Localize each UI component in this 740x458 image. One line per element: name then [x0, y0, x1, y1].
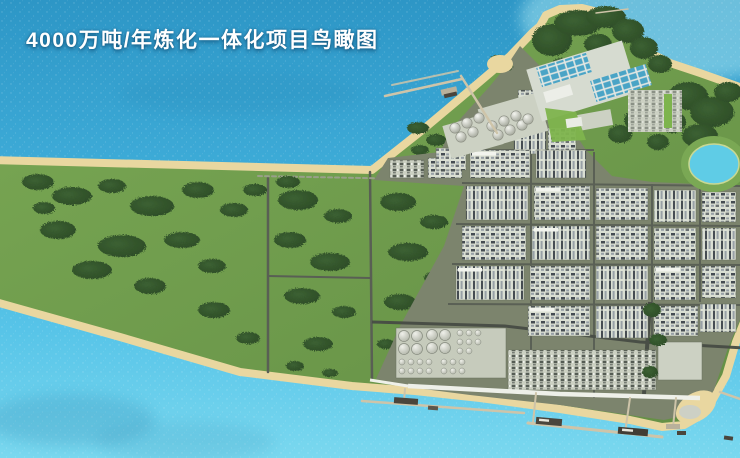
plant-block	[596, 226, 648, 260]
storage-tank-small	[399, 368, 405, 374]
sphere-tank	[493, 130, 503, 140]
sphere-tank	[450, 123, 460, 133]
block-label-strip	[530, 308, 554, 312]
storage-tank-small	[475, 330, 481, 336]
storage-tank	[412, 331, 423, 342]
tree-cluster	[98, 179, 126, 193]
plant-block	[596, 266, 648, 300]
storage-tank-small	[399, 359, 405, 365]
tree-cluster	[332, 306, 356, 318]
tree-cluster	[310, 253, 350, 271]
tree-cluster	[33, 202, 55, 214]
storage-tank-small	[457, 348, 463, 354]
tree-cluster	[243, 184, 267, 196]
tree-cluster	[22, 174, 54, 190]
tree-cluster	[407, 122, 429, 134]
tree-cluster	[276, 176, 300, 188]
plant-block	[702, 266, 736, 298]
tree-cluster	[420, 215, 448, 229]
parking-area	[628, 90, 682, 132]
tree-cluster	[52, 187, 92, 205]
storage-tank-small	[450, 359, 456, 365]
storage-tank-small	[466, 348, 472, 354]
sphere-tank	[523, 114, 533, 124]
sphere-tank	[462, 118, 472, 128]
sphere-tank	[499, 116, 509, 126]
tree-cluster	[322, 369, 338, 377]
plant-block	[536, 150, 586, 178]
tree-cluster	[647, 134, 669, 150]
storage-tank-small	[426, 359, 432, 365]
storage-tank	[412, 344, 423, 355]
tree-cluster	[642, 366, 658, 378]
storage-tank-small	[441, 368, 447, 374]
tree-cluster	[134, 278, 166, 294]
sphere-tank	[474, 113, 484, 123]
tree-cluster	[380, 193, 416, 211]
island-sand	[487, 55, 513, 73]
tree-cluster	[411, 145, 429, 155]
storage-tank-small	[457, 330, 463, 336]
plant-block	[654, 228, 696, 260]
storage-tank	[427, 330, 438, 341]
plant-block	[466, 186, 528, 220]
sphere-tank	[456, 132, 466, 142]
block-label-strip	[534, 228, 558, 232]
storage-tank-small	[466, 330, 472, 336]
block-label-strip	[656, 268, 680, 272]
project-title: 4000万吨/年炼化一体化项目鸟瞰图	[26, 24, 379, 54]
small-island	[487, 55, 513, 73]
cloud-shadow	[120, 73, 360, 117]
tree-cluster	[303, 337, 333, 351]
storage-tank-small	[441, 359, 447, 365]
storage-tank-small	[466, 339, 472, 345]
storage-tank	[399, 344, 410, 355]
concrete-pad	[679, 405, 701, 419]
tree-cluster	[630, 37, 658, 59]
plant-block	[508, 350, 656, 390]
tree-cluster	[198, 259, 226, 273]
sphere-tank	[505, 125, 515, 135]
plant-block	[596, 188, 648, 220]
plant-block	[700, 304, 736, 332]
tree-cluster	[236, 332, 260, 344]
tree-cluster	[164, 232, 200, 248]
storage-tank	[440, 343, 451, 354]
storage-tank-small	[475, 339, 481, 345]
storage-tank-small	[417, 359, 423, 365]
plant-block	[462, 226, 526, 260]
pond-water	[689, 144, 739, 184]
tree-cluster	[426, 134, 446, 146]
aerial-view-stage: 4000万吨/年炼化一体化项目鸟瞰图	[0, 0, 740, 458]
tree-cluster	[182, 182, 214, 198]
tree-cluster	[286, 361, 304, 371]
storage-tank	[440, 330, 451, 341]
tree-cluster	[40, 221, 76, 239]
storage-tank-small	[457, 339, 463, 345]
storage-tank-small	[459, 359, 465, 365]
plant-block	[530, 266, 590, 300]
storage-tank-small	[417, 368, 423, 374]
tug-boat	[428, 406, 438, 411]
storage-tank-small	[459, 368, 465, 374]
parked-vehicles	[628, 90, 682, 132]
tree-cluster	[72, 261, 112, 279]
tree-cluster	[278, 190, 318, 210]
storage-tank-small	[426, 368, 432, 374]
tree-cluster	[648, 55, 672, 73]
storage-tank-small	[450, 368, 456, 374]
aerial-view-canvas	[0, 0, 740, 458]
plant-block	[658, 342, 702, 380]
storage-tank	[427, 343, 438, 354]
tree-cluster	[324, 209, 352, 223]
storage-tank-small	[408, 359, 414, 365]
tree-cluster	[98, 235, 146, 257]
tree-cluster	[388, 243, 428, 261]
lawn-strip	[664, 94, 672, 128]
plant-block	[702, 192, 736, 222]
plant-block	[654, 190, 696, 222]
small-boat	[677, 431, 686, 435]
tree-cluster	[643, 303, 661, 317]
plant-block	[702, 228, 736, 260]
tree-cluster	[130, 196, 174, 216]
grid-road	[452, 264, 740, 265]
tree-cluster	[274, 232, 306, 248]
plant-block	[596, 306, 648, 338]
sphere-tank	[511, 111, 521, 121]
tree-cluster	[198, 302, 230, 318]
berth-platform	[666, 424, 680, 429]
tree-cluster	[220, 203, 248, 217]
grid-road	[448, 304, 740, 305]
plant-block	[390, 160, 424, 178]
block-label-strip	[458, 268, 482, 272]
block-label-strip	[472, 152, 496, 156]
storage-tank	[399, 331, 410, 342]
tree-cluster	[649, 334, 667, 346]
tree-cluster	[284, 288, 320, 304]
sphere-tank	[468, 127, 478, 137]
storage-tank-small	[408, 368, 414, 374]
block-label-strip	[536, 188, 560, 192]
